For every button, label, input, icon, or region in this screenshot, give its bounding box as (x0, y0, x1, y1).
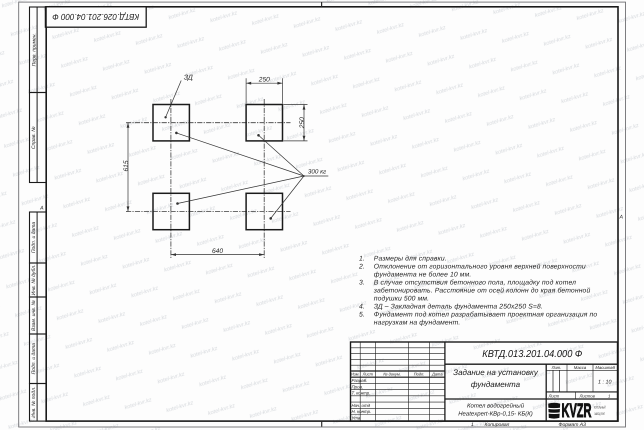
svg-text:ЗД: ЗД (184, 75, 193, 82)
svg-text:Лист: Лист (362, 372, 374, 377)
svg-text:Масса: Масса (574, 365, 587, 370)
svg-text:ЗАВОД РЭП: ЗАВОД РЭП (594, 412, 605, 416)
svg-text:3.: 3. (359, 279, 365, 286)
svg-text:4.: 4. (359, 304, 365, 311)
svg-text:Лит.: Лит. (551, 365, 562, 370)
svg-text:Перв. примен.: Перв. примен. (31, 33, 37, 66)
svg-text:Инв. № подл.: Инв. № подл. (31, 387, 37, 418)
svg-text:КВТД.026.201.04.000 Ф: КВТД.026.201.04.000 Ф (52, 12, 139, 22)
svg-text:1 : 10: 1 : 10 (598, 379, 612, 385)
svg-text:KVZR: KVZR (562, 400, 592, 422)
svg-text:нагрузкам на фундамент.: нагрузкам на фундамент. (374, 320, 461, 327)
svg-text:Фундамент под котел разрабатыв: Фундамент под котел разрабатывает проект… (374, 312, 598, 319)
svg-text:КОТЕЛЬНЫЙ: КОТЕЛЬНЫЙ (594, 405, 606, 410)
svg-text:№ докум.: № докум. (383, 372, 401, 377)
svg-text:250: 250 (299, 117, 306, 129)
svg-text:Отклонение от горизонтального: Отклонение от горизонтального уровня вер… (374, 262, 586, 270)
svg-text:Подп. и дата: Подп. и дата (31, 343, 37, 375)
svg-text:забетонировать. Расстояние от: забетонировать. Расстояние от осей колон… (373, 286, 591, 294)
svg-text:Утв: Утв (352, 415, 361, 420)
svg-text:640: 640 (212, 248, 223, 255)
svg-text:Т. контр.: Т. контр. (352, 391, 371, 396)
svg-text:5.: 5. (359, 312, 365, 319)
svg-text:Нач. отд: Нач. отд (352, 403, 371, 408)
svg-text:300 кг: 300 кг (308, 168, 326, 175)
svg-text:ЗД – Закладная деталь фундамен: ЗД – Закладная деталь фундамента 250х250… (374, 304, 543, 311)
svg-text:В случае отсутствия бетонного: В случае отсутствия бетонного пола, площ… (374, 279, 576, 286)
svg-text:Подп. и дата: Подп. и дата (31, 222, 37, 254)
svg-text:Листов: Листов (579, 394, 596, 399)
svg-text:Справ. №: Справ. № (31, 126, 37, 149)
svg-text:Дата: Дата (431, 372, 443, 377)
svg-text:Размеры для справки.: Размеры для справки. (374, 255, 447, 262)
svg-text:Heatexpert-КВр-0,15- КБ(К): Heatexpert-КВр-0,15- КБ(К) (458, 410, 533, 417)
svg-text:Подп.: Подп. (414, 372, 425, 377)
svg-text:Формат А3: Формат А3 (559, 422, 587, 428)
svg-text:1: 1 (608, 394, 610, 399)
svg-text:Пров.: Пров. (352, 384, 364, 389)
svg-text:250: 250 (258, 77, 270, 84)
svg-text:Разраб.: Разраб. (352, 378, 368, 383)
svg-text:Задание на установку: Задание на установку (453, 368, 539, 377)
svg-text:1.: 1. (359, 255, 365, 262)
svg-text:Изм.: Изм. (351, 372, 360, 377)
svg-text:1: 1 (471, 422, 474, 428)
svg-text:А: А (39, 205, 44, 211)
svg-text:подушки 500 мм.: подушки 500 мм. (374, 295, 429, 302)
svg-text:Копировал: Копировал (485, 422, 510, 428)
svg-text:А: А (618, 215, 623, 221)
svg-text:615: 615 (123, 160, 130, 171)
svg-text:Взам. инв. №: Взам. инв. № (31, 299, 37, 331)
svg-text:фундамента не более 10 мм.: фундамента не более 10 мм. (374, 271, 472, 278)
svg-text:2.: 2. (358, 263, 365, 270)
svg-text:Масштаб: Масштаб (595, 365, 615, 370)
svg-text:Н. контр.: Н. контр. (352, 409, 372, 414)
svg-text:КВТД.013.201.04.000 Ф: КВТД.013.201.04.000 Ф (482, 349, 582, 360)
svg-text:Котел водогрейный: Котел водогрейный (467, 402, 525, 409)
svg-text:Инв. № дубл.: Инв. № дубл. (31, 265, 37, 296)
svg-text:Лист: Лист (548, 394, 560, 399)
svg-text:фундамента: фундамента (471, 380, 521, 389)
